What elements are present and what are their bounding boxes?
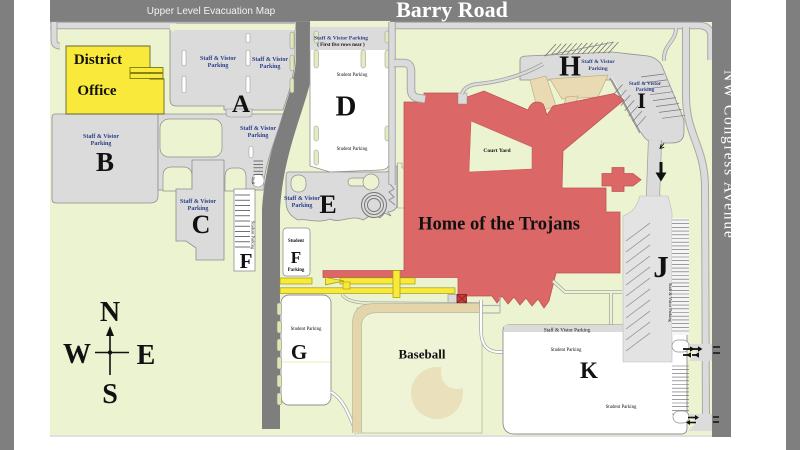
svg-text:Student Parking: Student Parking bbox=[337, 147, 368, 152]
svg-text:Staff & Vistor Parking: Staff & Vistor Parking bbox=[314, 36, 368, 42]
svg-text:Parking: Parking bbox=[292, 203, 313, 209]
svg-text:E: E bbox=[137, 340, 156, 371]
svg-text:D: D bbox=[336, 91, 357, 123]
svg-text:F: F bbox=[240, 249, 253, 273]
svg-text:Student Parking: Student Parking bbox=[606, 405, 637, 410]
svg-text:( First five rows near ): ( First five rows near ) bbox=[317, 43, 365, 48]
svg-text:Student Parking: Student Parking bbox=[551, 348, 582, 353]
svg-text:Staff & Vistor: Staff & Vistor bbox=[180, 199, 216, 205]
svg-text:S: S bbox=[102, 379, 118, 410]
svg-text:Barry Road: Barry Road bbox=[396, 0, 508, 22]
svg-text:W: W bbox=[63, 339, 91, 370]
svg-text:Student: Student bbox=[288, 239, 304, 244]
svg-text:Staff & Vistor: Staff & Vistor bbox=[240, 126, 276, 132]
svg-text:Staff & Vistor: Staff & Vistor bbox=[581, 59, 615, 65]
svg-text:Staff & Vistor: Staff & Vistor bbox=[83, 134, 119, 140]
svg-text:Staff & Vistor Parking: Staff & Vistor Parking bbox=[668, 283, 673, 322]
svg-text:NW Congress Avenue: NW Congress Avenue bbox=[721, 70, 738, 240]
svg-text:Student Parking: Student Parking bbox=[291, 327, 322, 332]
svg-text:Baseball: Baseball bbox=[399, 347, 446, 362]
svg-text:N: N bbox=[100, 297, 120, 328]
svg-text:E: E bbox=[319, 190, 336, 219]
svg-text:Staff & Vistor: Staff & Vistor bbox=[252, 57, 288, 63]
svg-text:Staff & Vistor: Staff & Vistor bbox=[200, 56, 236, 62]
svg-text:Student Parking: Student Parking bbox=[337, 73, 368, 78]
svg-text:Office: Office bbox=[77, 83, 116, 99]
svg-text:C: C bbox=[192, 210, 211, 239]
svg-text:Staff: Staff bbox=[251, 177, 255, 185]
svg-text:J: J bbox=[653, 249, 669, 284]
svg-text:A: A bbox=[232, 91, 250, 118]
svg-text:G: G bbox=[291, 340, 307, 364]
svg-text:Parking: Parking bbox=[588, 66, 607, 72]
svg-text:Court Yard: Court Yard bbox=[483, 148, 511, 154]
svg-text:Student Parking: Student Parking bbox=[251, 221, 256, 250]
svg-text:K: K bbox=[580, 358, 598, 383]
svg-text:Parking: Parking bbox=[260, 64, 281, 70]
svg-text:B: B bbox=[96, 147, 114, 177]
svg-text:Staff & Vistor Parking: Staff & Vistor Parking bbox=[544, 327, 591, 334]
svg-text:F: F bbox=[291, 248, 301, 267]
svg-text:Parking: Parking bbox=[248, 133, 269, 139]
svg-text:Home of the Trojans: Home of the Trojans bbox=[418, 215, 580, 235]
svg-text:I: I bbox=[637, 88, 646, 113]
svg-text:Parking: Parking bbox=[288, 268, 305, 273]
svg-text:Staff & Vistor: Staff & Vistor bbox=[284, 196, 320, 202]
svg-text:District: District bbox=[74, 52, 122, 68]
svg-text:Parking: Parking bbox=[208, 63, 229, 69]
svg-text:Upper Level Evacuation Map: Upper Level Evacuation Map bbox=[147, 6, 276, 17]
